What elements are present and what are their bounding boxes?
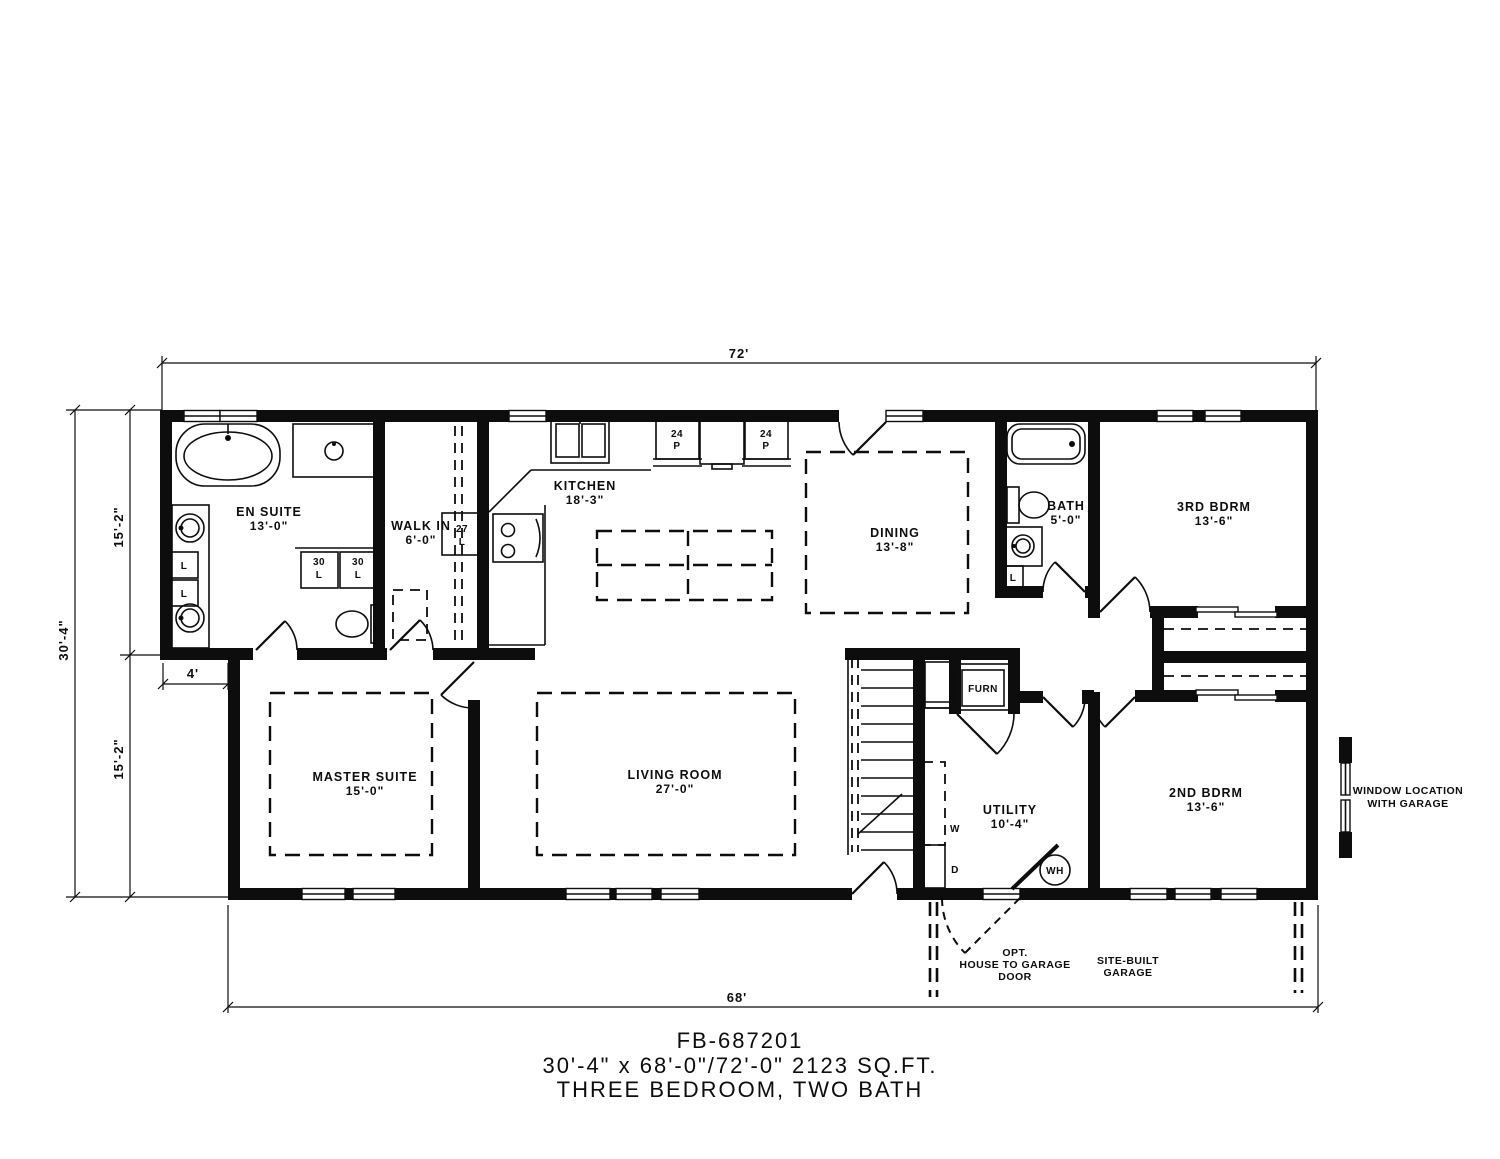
opt-door-note-3: DOOR	[998, 971, 1032, 983]
floor-plan-page: EN SUITE 13'-0" WALK IN 6'-0" KITCHEN 18…	[0, 0, 1500, 1159]
linen30b-label: 30	[352, 557, 364, 568]
room-2nd-bdrm: 2ND BDRM	[1169, 786, 1243, 800]
ensuite-door	[256, 621, 297, 650]
svg-text:L: L	[316, 570, 323, 581]
dim-left-upper: 15'-2"	[111, 506, 126, 547]
linen27-label: 27	[456, 524, 468, 535]
third-bdrm-door	[1100, 577, 1150, 612]
plan-model-number: FB-687201	[677, 1028, 804, 1053]
closet-slider-3rd	[1196, 607, 1277, 617]
washer-dryer	[923, 762, 945, 888]
dryer-label: D	[951, 865, 959, 876]
kitchen-sink	[551, 417, 609, 463]
bathtub-bath	[1007, 424, 1085, 464]
vanity-ensuite-left	[172, 505, 209, 648]
room-bath: BATH	[1047, 499, 1085, 513]
svg-text:13'-6": 13'-6"	[1195, 514, 1234, 528]
window-note-1: WINDOW LOCATION	[1353, 785, 1464, 797]
furnace-label: FURN	[968, 684, 998, 695]
svg-text:13'-6": 13'-6"	[1187, 800, 1226, 814]
svg-text:L: L	[355, 570, 362, 581]
window-opt-door-location	[983, 889, 1020, 900]
dim-top: 72'	[729, 346, 750, 361]
window-note-2: WITH GARAGE	[1367, 798, 1448, 810]
svg-text:13'-0": 13'-0"	[250, 519, 289, 533]
svg-text:6'-0": 6'-0"	[406, 533, 437, 547]
walls	[160, 410, 1318, 900]
pantry1-label: 24	[671, 429, 683, 440]
garage-outline	[930, 902, 1302, 997]
bath-door	[1043, 562, 1085, 592]
range	[493, 514, 543, 562]
room-ensuite: EN SUITE	[236, 505, 302, 519]
svg-text:P: P	[762, 441, 769, 452]
room-utility: UTILITY	[983, 803, 1037, 817]
svg-text:18'-3": 18'-3"	[566, 493, 605, 507]
dim-offset: 4'	[187, 666, 199, 681]
window-ensuite	[184, 411, 257, 422]
washer-label: W	[950, 824, 960, 835]
opt-garage-door	[942, 898, 1020, 953]
refrigerator	[700, 417, 744, 469]
plan-size: 30'-4" x 68'-0"/72'-0" 2123 SQ.FT.	[542, 1053, 937, 1078]
utility-door	[1043, 697, 1085, 727]
dim-left-lower: 15'-2"	[111, 738, 126, 779]
toilet-bath	[1007, 487, 1049, 523]
opt-door-note-2: HOUSE TO GARAGE	[959, 959, 1070, 971]
plan-bedrooms: THREE BEDROOM, TWO BATH	[557, 1077, 924, 1102]
dim-left-total: 30'-4"	[56, 619, 71, 660]
linen-ensuite-a: L	[181, 561, 188, 572]
linen-ensuite-b: L	[181, 589, 188, 600]
svg-text:5'-0": 5'-0"	[1051, 513, 1082, 527]
svg-text:L: L	[459, 537, 466, 548]
vanity-ensuite-top	[293, 424, 377, 477]
furnace-door	[957, 714, 1014, 754]
dim-bottom: 68'	[727, 990, 748, 1005]
garage-note-1: SITE-BUILT	[1097, 955, 1159, 967]
room-kitchen: KITCHEN	[554, 479, 617, 493]
closet-slider-2nd	[1196, 690, 1277, 700]
garage-note-2: GARAGE	[1103, 967, 1152, 979]
water-heater-label: WH	[1046, 866, 1064, 877]
room-dining: DINING	[870, 526, 920, 540]
floor-plan-drawing: EN SUITE 13'-0" WALK IN 6'-0" KITCHEN 18…	[0, 0, 1500, 1159]
stair-closet	[925, 662, 953, 708]
svg-text:27'-0": 27'-0"	[656, 782, 695, 796]
linen-30-cabinets	[295, 548, 379, 588]
window-living	[566, 889, 699, 900]
svg-text:15'-0": 15'-0"	[346, 784, 385, 798]
window-2nd-bdrm	[1130, 889, 1257, 900]
room-master: MASTER SUITE	[312, 770, 417, 784]
svg-text:10'-4": 10'-4"	[991, 817, 1030, 831]
linen-bath: L	[1010, 573, 1017, 584]
fixtures	[170, 417, 1352, 997]
entry-door	[839, 422, 886, 455]
linen30a-label: 30	[313, 557, 325, 568]
pantry2-label: 24	[760, 429, 772, 440]
garage-entry-door	[852, 862, 897, 894]
kitchen-island	[597, 531, 772, 600]
room-walkin: WALK IN	[391, 519, 451, 533]
opt-door-note-1: OPT.	[1002, 947, 1027, 959]
vanity-bath	[1005, 527, 1042, 566]
window-entry-side	[886, 411, 923, 422]
bathtub-ensuite	[176, 424, 280, 486]
dimension-lines	[66, 356, 1323, 1013]
svg-text:P: P	[673, 441, 680, 452]
stairs	[848, 655, 913, 855]
garage-window-symbol	[1339, 737, 1352, 858]
window-kitchen	[509, 411, 546, 422]
doors	[256, 422, 1277, 953]
room-living: LIVING ROOM	[627, 768, 722, 782]
svg-text:13'-8": 13'-8"	[876, 540, 915, 554]
room-3rd-bdrm: 3RD BDRM	[1177, 500, 1251, 514]
